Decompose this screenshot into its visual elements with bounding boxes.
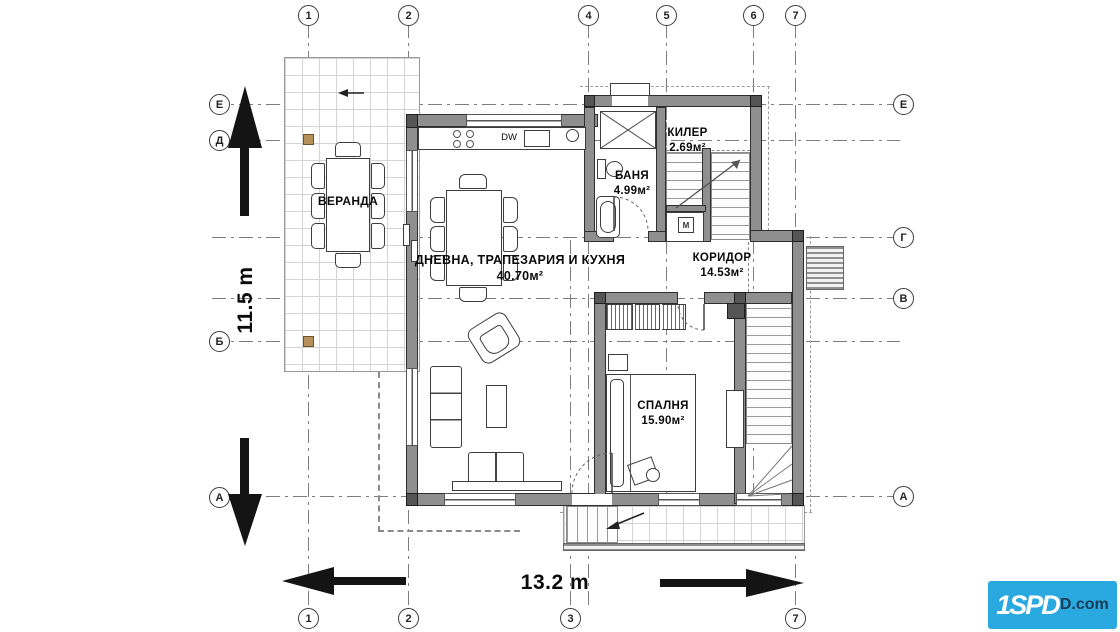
- wall-pier: [792, 230, 804, 242]
- room-label-corridor: КОРИДОР 14.53м²: [662, 251, 782, 281]
- axis-bubble-top-6: 6: [743, 5, 764, 26]
- stair-winder: [748, 446, 792, 496]
- entrance-door-gap: [572, 494, 612, 505]
- wall-bedroom-left: [594, 292, 606, 504]
- patio-dashed-edge: [378, 530, 520, 532]
- veranda-chair: [371, 223, 385, 249]
- coffee-table: [486, 385, 507, 428]
- armchair: [465, 309, 524, 366]
- kitchen-sink: [524, 130, 550, 147]
- bed-pillow: [610, 379, 624, 487]
- kitchen-sink-bowl: [566, 129, 579, 142]
- ac-unit: [806, 246, 844, 290]
- axis-bubble-right-V: В: [893, 288, 914, 309]
- room-label-veranda: ВЕРАНДА: [288, 194, 408, 210]
- veranda-chair: [371, 163, 385, 189]
- axis-bubble-left-D: Д: [209, 130, 230, 151]
- dimension-arrow-shaft: [660, 579, 748, 587]
- axis-bubble-top-7: 7: [785, 5, 806, 26]
- veranda-sliding-door: [403, 224, 410, 246]
- axis-bubble-top-4: 4: [578, 5, 599, 26]
- dining-chair: [430, 197, 445, 223]
- axis-bubble-bottom-3: 3: [560, 608, 581, 629]
- window-stair-bottom: [736, 493, 782, 506]
- room-label-pantry: КИЛЕР 2.69м²: [640, 126, 735, 156]
- wardrobe-divider: [632, 304, 635, 330]
- axis-bubble-top-1: 1: [298, 5, 319, 26]
- axis-bubble-right-G: Г: [893, 227, 914, 248]
- window-bedroom-bottom: [658, 493, 700, 506]
- wardrobe: [606, 304, 686, 330]
- axis-bubble-bottom-1: 1: [298, 608, 319, 629]
- terrace-edge-band: [563, 543, 805, 551]
- room-area: 15.90м²: [613, 414, 713, 429]
- room-area: 2.69м²: [640, 141, 735, 156]
- dimension-arrow-shaft: [240, 146, 249, 216]
- wall-pier: [406, 493, 418, 506]
- wall-pier: [750, 95, 762, 107]
- logo-badge[interactable]: 1SPDD.com: [988, 581, 1117, 629]
- room-name: ДНЕВНА, ТРАПЕЗАРИЯ И КУХНЯ: [402, 252, 638, 268]
- stove-burner: [453, 130, 461, 138]
- dimension-arrow-shaft: [240, 438, 249, 496]
- axis-bubble-left-A: А: [209, 487, 230, 508]
- wall-pier: [792, 493, 804, 506]
- axis-bubble-top-2: 2: [398, 5, 419, 26]
- armchair-seat: [478, 323, 513, 357]
- room-name: КИЛЕР: [640, 126, 735, 141]
- bedroom-dark-cabinet: [727, 303, 745, 319]
- veranda-post-top: [303, 134, 314, 145]
- room-name: БАНЯ: [596, 169, 668, 184]
- window-living-bottom: [444, 493, 516, 506]
- wall-top-utility: [584, 95, 762, 107]
- dresser: [726, 390, 744, 448]
- dimension-arrowhead-down: [228, 494, 262, 546]
- wardrobe-divider: [659, 304, 662, 330]
- dining-chair: [459, 174, 487, 189]
- logo-secondary-text: D.com: [1060, 597, 1109, 613]
- room-area: 4.99м²: [596, 184, 668, 199]
- dining-chair: [503, 226, 518, 252]
- stove-burner: [453, 140, 461, 148]
- wall-laundry-top: [666, 205, 706, 212]
- wall-pier: [584, 95, 595, 107]
- room-label-bath: БАНЯ 4.99м²: [596, 169, 668, 199]
- veranda-chair: [311, 223, 325, 249]
- patio-dashed-edge: [378, 372, 380, 532]
- window-living-left-lower: [406, 368, 418, 446]
- stove-burner: [466, 130, 474, 138]
- entrance-steps: [566, 506, 618, 543]
- dimension-arrowhead-right: [746, 569, 804, 597]
- wall-pier: [594, 292, 606, 304]
- dimension-arrow-shaft: [330, 577, 406, 585]
- washing-machine: M: [678, 217, 694, 233]
- veranda-post-bottom: [303, 336, 314, 347]
- dimension-arrowhead-left: [282, 567, 334, 595]
- room-label-bedroom: СПАЛНЯ 15.90м²: [613, 399, 713, 429]
- stair-upper-right-flight: [711, 152, 750, 240]
- wall-bedroom-top-right: [704, 292, 792, 304]
- axis-bubble-bottom-7: 7: [785, 608, 806, 629]
- sofa: [430, 366, 462, 448]
- top-door-step: [610, 83, 650, 96]
- plan-annotations: [0, 0, 1120, 632]
- floor-plan: 1 2 4 5 6 7 1 2 3 7 Е Д Б А Е Г В А ВЕРА…: [0, 0, 1120, 632]
- bed-blanket-line: [630, 375, 631, 491]
- window-kitchen-top: [466, 114, 562, 127]
- axis-bubble-right-E: Е: [893, 94, 914, 115]
- stair-lower-flight: [746, 298, 792, 444]
- room-area: 40.70м²: [402, 268, 638, 284]
- dishwasher-label: DW: [494, 132, 524, 144]
- stove-burner: [466, 140, 474, 148]
- wall-right-lower: [792, 230, 804, 506]
- wall-pier: [406, 114, 418, 128]
- dining-chair: [459, 287, 487, 302]
- bathtub-inner: [600, 201, 616, 233]
- top-door-gap: [612, 96, 648, 106]
- logo-primary-text: 1SPD: [996, 592, 1059, 619]
- dining-chair: [430, 226, 445, 252]
- wall-right-upper: [750, 95, 762, 242]
- room-name: КОРИДОР: [662, 251, 782, 266]
- dining-chair: [503, 197, 518, 223]
- axis-bubble-left-E: Е: [209, 94, 230, 115]
- nightstand: [608, 354, 628, 371]
- roof-overhang-top: [580, 86, 770, 87]
- room-label-living: ДНЕВНА, ТРАПЕЗАРИЯ И КУХНЯ 40.70м²: [402, 252, 638, 285]
- loveseat: [468, 452, 524, 484]
- axis-bubble-top-5: 5: [656, 5, 677, 26]
- veranda-chair: [335, 142, 361, 157]
- dimension-arrowhead-up: [228, 86, 262, 148]
- veranda-chair: [311, 163, 325, 189]
- dimension-vertical: 11.5 m: [234, 250, 258, 350]
- dimension-horizontal: 13.2 m: [505, 571, 605, 595]
- room-area: 14.53м²: [662, 266, 782, 281]
- roof-overhang-right-upper: [768, 86, 769, 236]
- axis-bubble-right-A: А: [893, 486, 914, 507]
- desk-chair: [646, 468, 660, 482]
- axis-bubble-bottom-2: 2: [398, 608, 419, 629]
- stair-upper-left-flight: [666, 152, 703, 206]
- room-name: СПАЛНЯ: [613, 399, 713, 414]
- veranda-chair: [335, 253, 361, 268]
- grid-line-3: [570, 240, 571, 608]
- sideboard: [452, 481, 562, 491]
- axis-bubble-left-B: Б: [209, 331, 230, 352]
- wall-bedroom-top-left: [594, 292, 678, 304]
- wall-bath-bottom-right: [648, 231, 666, 242]
